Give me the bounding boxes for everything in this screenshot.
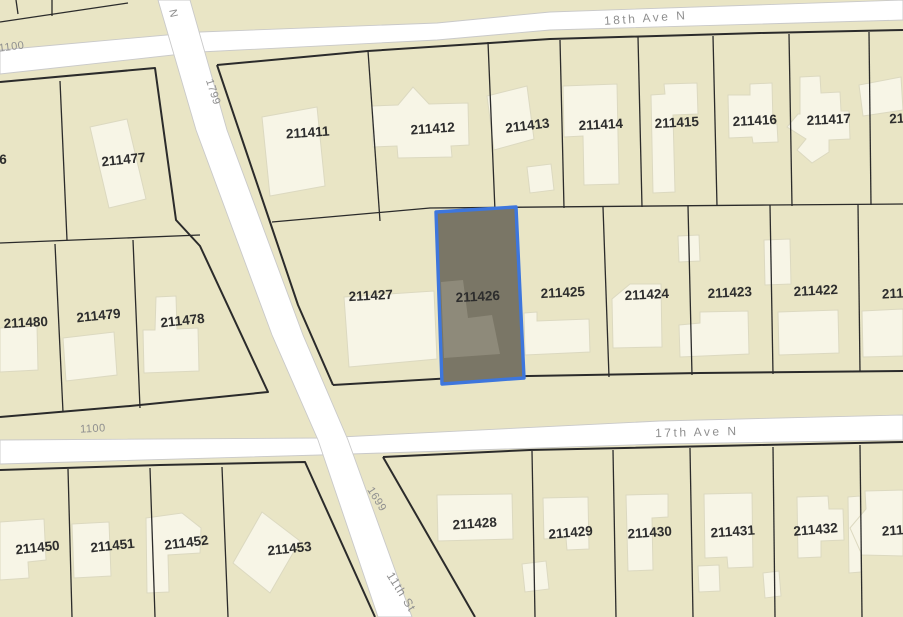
parcel-label: 6 — [0, 152, 7, 167]
street-label: 1100 — [80, 422, 106, 435]
building-footprint — [763, 571, 781, 598]
parcel-label: 211415 — [654, 114, 700, 131]
parcel-label: 211417 — [806, 111, 851, 128]
parcel-label: 211425 — [540, 284, 586, 301]
parcel-label: 211427 — [348, 287, 393, 304]
parcel-label: 211428 — [452, 514, 498, 532]
building-footprint — [522, 561, 549, 592]
parcel-label: 211412 — [410, 119, 455, 137]
parcel-label: 211416 — [732, 112, 778, 129]
building-footprint — [63, 332, 117, 381]
map-canvas[interactable]: 18th Ave N17th Ave N110011001799169911th… — [0, 0, 903, 617]
parcel-label: 211480 — [3, 314, 48, 331]
parcel-label: 211 — [881, 285, 903, 301]
building-footprint — [862, 309, 903, 357]
parcel-label: 211 — [881, 522, 903, 539]
parcel-label: 211430 — [627, 523, 672, 541]
parcel-label: 211411 — [285, 123, 330, 141]
parcel-label: 211422 — [793, 282, 838, 299]
building-footprint — [778, 310, 839, 355]
parcel-label: 211424 — [624, 286, 670, 303]
building-footprint — [764, 239, 791, 285]
building-footprint — [262, 107, 325, 196]
selected-parcel-label: 211426 — [455, 288, 501, 305]
parcel-map[interactable]: 18th Ave N17th Ave N110011001799169911th… — [0, 0, 903, 617]
parcel-label: 211414 — [578, 116, 624, 133]
parcel-label: 211431 — [710, 522, 756, 540]
parcel-label: 21 — [889, 111, 903, 127]
building-footprint — [698, 565, 720, 592]
building-footprint — [0, 326, 38, 372]
street-label: 17th Ave N — [655, 424, 739, 440]
building-footprint — [527, 164, 554, 193]
parcel-label: 211423 — [707, 284, 753, 301]
